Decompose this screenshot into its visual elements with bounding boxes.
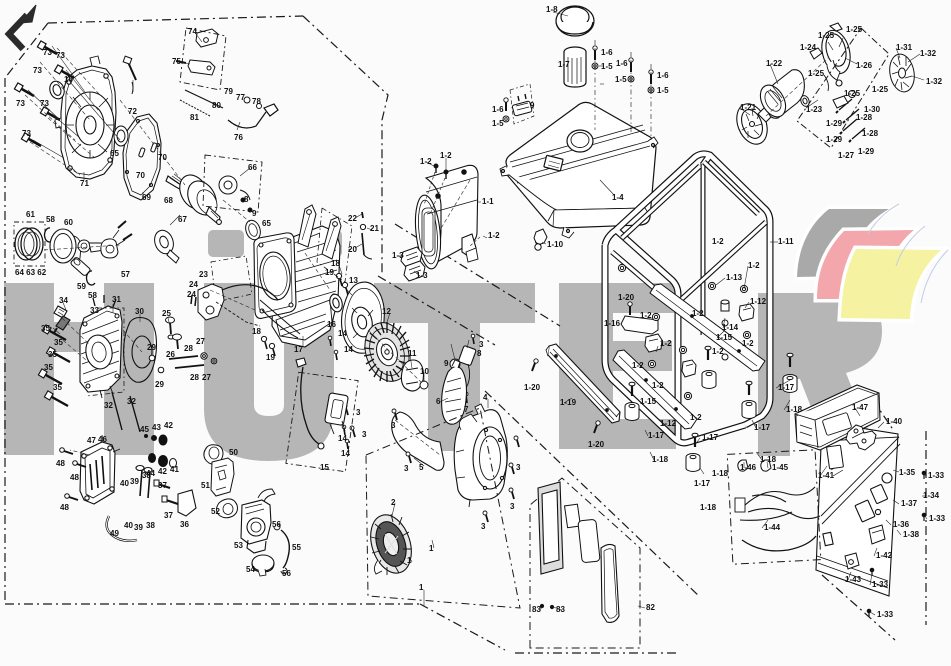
svg-text:1-40: 1-40 (886, 417, 903, 426)
svg-text:42: 42 (164, 421, 173, 430)
svg-text:29: 29 (147, 343, 156, 352)
svg-text:80: 80 (212, 101, 221, 110)
svg-text:20: 20 (348, 245, 357, 254)
svg-text:1: 1 (429, 544, 434, 553)
svg-text:16: 16 (64, 75, 73, 84)
svg-text:1-25: 1-25 (872, 85, 889, 94)
svg-text:41: 41 (170, 465, 179, 474)
svg-text:74: 74 (188, 27, 197, 36)
svg-text:17: 17 (294, 345, 303, 354)
svg-text:70: 70 (158, 153, 167, 162)
svg-text:1-25: 1-25 (846, 25, 863, 34)
svg-text:69: 69 (142, 193, 151, 202)
svg-text:1-18: 1-18 (652, 455, 669, 464)
svg-text:1-17: 1-17 (754, 423, 771, 432)
svg-text:1-33: 1-33 (872, 580, 889, 589)
svg-text:5: 5 (419, 463, 424, 472)
svg-text:51: 51 (201, 481, 210, 490)
svg-text:1: 1 (419, 583, 424, 592)
svg-text:16: 16 (327, 320, 336, 329)
svg-text:1-6: 1-6 (616, 59, 628, 68)
svg-text:39: 39 (134, 523, 143, 532)
svg-text:77: 77 (236, 93, 245, 102)
svg-text:1-34: 1-34 (923, 491, 940, 500)
svg-text:1-44: 1-44 (764, 523, 781, 532)
svg-text:24: 24 (189, 280, 198, 289)
svg-text:1-28: 1-28 (856, 113, 873, 122)
svg-text:33: 33 (90, 306, 99, 315)
svg-text:50: 50 (229, 448, 238, 457)
svg-text:19: 19 (266, 353, 275, 362)
svg-text:3: 3 (510, 502, 515, 511)
svg-text:1-14: 1-14 (722, 323, 739, 332)
svg-text:64 63 62: 64 63 62 (15, 268, 47, 277)
svg-text:35: 35 (44, 363, 53, 372)
svg-text:31: 31 (112, 295, 121, 304)
svg-text:40: 40 (124, 521, 133, 530)
svg-text:9: 9 (444, 359, 449, 368)
svg-text:58: 58 (46, 215, 55, 224)
svg-text:3: 3 (516, 463, 521, 472)
svg-text:53: 53 (234, 541, 243, 550)
svg-text:57: 57 (121, 270, 130, 279)
svg-text:4: 4 (483, 393, 488, 402)
svg-text:23: 23 (199, 270, 208, 279)
svg-text:1-31: 1-31 (896, 43, 913, 52)
svg-text:1-2: 1-2 (632, 361, 644, 370)
svg-text:1-45: 1-45 (772, 463, 789, 472)
svg-text:1-15: 1-15 (640, 397, 657, 406)
svg-text:28: 28 (190, 373, 199, 382)
svg-text:71: 71 (80, 179, 89, 188)
svg-text:1-18: 1-18 (712, 469, 729, 478)
svg-text:1-36: 1-36 (893, 520, 910, 529)
svg-text:1-28: 1-28 (862, 129, 879, 138)
svg-text:83: 83 (532, 605, 541, 614)
svg-text:1-30: 1-30 (864, 105, 881, 114)
svg-text:43: 43 (152, 423, 161, 432)
svg-text:82: 82 (646, 603, 655, 612)
svg-text:1-19: 1-19 (560, 398, 577, 407)
svg-text:1-2: 1-2 (660, 339, 672, 348)
svg-text:1-17: 1-17 (694, 479, 711, 488)
svg-text:1-46: 1-46 (740, 463, 757, 472)
svg-text:3: 3 (391, 421, 396, 430)
svg-text:70: 70 (136, 171, 145, 180)
svg-text:1-23: 1-23 (806, 105, 823, 114)
svg-text:25: 25 (162, 309, 171, 318)
svg-text:2: 2 (391, 498, 396, 507)
svg-text:14: 14 (341, 449, 350, 458)
svg-text:35: 35 (53, 383, 62, 392)
svg-text:1-4: 1-4 (612, 193, 624, 202)
svg-text:73: 73 (22, 129, 31, 138)
svg-text:48: 48 (56, 459, 65, 468)
svg-text:48: 48 (70, 473, 79, 482)
svg-text:35: 35 (48, 350, 57, 359)
svg-text:73: 73 (16, 99, 25, 108)
svg-text:39: 39 (130, 477, 139, 486)
svg-text:54: 54 (246, 565, 255, 574)
svg-text:73: 73 (56, 51, 65, 60)
svg-text:18: 18 (331, 259, 340, 268)
svg-text:67: 67 (178, 215, 187, 224)
svg-text:73: 73 (40, 99, 49, 108)
svg-text:37: 37 (158, 481, 167, 490)
svg-text:1-2: 1-2 (748, 261, 760, 270)
svg-text:1-2: 1-2 (652, 381, 664, 390)
svg-text:38: 38 (146, 521, 155, 530)
svg-text:1-38: 1-38 (903, 530, 920, 539)
svg-text:1-20: 1-20 (588, 440, 605, 449)
svg-text:19: 19 (325, 268, 334, 277)
svg-text:38: 38 (142, 471, 151, 480)
svg-text:1-2: 1-2 (742, 339, 754, 348)
svg-text:1-17: 1-17 (778, 383, 795, 392)
svg-text:24: 24 (187, 290, 196, 299)
svg-text:1-32: 1-32 (926, 77, 943, 86)
svg-text:1-5: 1-5 (601, 62, 613, 71)
svg-text:1-16: 1-16 (604, 319, 621, 328)
svg-text:27: 27 (202, 373, 211, 382)
svg-text:1-2: 1-2 (692, 309, 704, 318)
svg-text:3: 3 (362, 430, 367, 439)
svg-text:9: 9 (252, 209, 257, 218)
svg-text:9: 9 (530, 101, 535, 110)
svg-text:1-18: 1-18 (786, 405, 803, 414)
svg-text:1-15: 1-15 (716, 333, 733, 342)
svg-text:3: 3 (356, 408, 361, 417)
svg-text:1-29: 1-29 (858, 147, 875, 156)
svg-text:8: 8 (244, 195, 249, 204)
svg-text:1-2: 1-2 (420, 157, 432, 166)
svg-text:18: 18 (252, 327, 261, 336)
svg-text:1-26: 1-26 (856, 61, 873, 70)
svg-text:1-6: 1-6 (657, 71, 669, 80)
svg-text:1-20: 1-20 (524, 383, 541, 392)
svg-text:32: 32 (104, 401, 113, 410)
svg-text:1-3: 1-3 (416, 271, 428, 280)
svg-text:36: 36 (180, 520, 189, 529)
svg-text:10: 10 (420, 367, 429, 376)
svg-text:52: 52 (211, 507, 220, 516)
svg-text:1-29: 1-29 (826, 119, 843, 128)
svg-text:34: 34 (59, 296, 68, 305)
svg-text:42: 42 (158, 467, 167, 476)
svg-text:1-5: 1-5 (657, 86, 669, 95)
svg-text:30: 30 (135, 307, 144, 316)
svg-text:75: 75 (172, 57, 181, 66)
svg-text:1-32: 1-32 (920, 49, 937, 58)
svg-text:1-25: 1-25 (844, 89, 861, 98)
svg-text:1-2: 1-2 (488, 231, 500, 240)
svg-text:1-25: 1-25 (818, 31, 835, 40)
svg-text:81: 81 (190, 113, 199, 122)
svg-text:1: 1 (407, 556, 412, 565)
svg-text:73: 73 (33, 66, 42, 75)
svg-text:73: 73 (43, 48, 52, 57)
svg-text:45: 45 (140, 425, 149, 434)
svg-text:1-12: 1-12 (660, 419, 677, 428)
svg-text:13: 13 (349, 276, 358, 285)
svg-text:1-12: 1-12 (750, 297, 767, 306)
svg-text:3: 3 (404, 464, 409, 473)
svg-text:1-29: 1-29 (826, 135, 843, 144)
svg-text:14: 14 (338, 434, 347, 443)
svg-text:14: 14 (338, 329, 347, 338)
svg-text:1-47: 1-47 (852, 403, 869, 412)
svg-text:72: 72 (128, 107, 137, 116)
svg-text:1-24: 1-24 (800, 43, 817, 52)
svg-text:83: 83 (556, 605, 565, 614)
svg-text:6: 6 (436, 397, 441, 406)
svg-text:1-42: 1-42 (876, 551, 893, 560)
svg-text:1-25: 1-25 (808, 69, 825, 78)
svg-text:35: 35 (54, 338, 63, 347)
svg-text:1-27: 1-27 (838, 151, 855, 160)
svg-text:1-33: 1-33 (928, 471, 945, 480)
svg-text:49: 49 (110, 529, 119, 538)
svg-text:56: 56 (282, 569, 291, 578)
svg-text:21: 21 (370, 224, 379, 233)
svg-text:1-41: 1-41 (818, 471, 835, 480)
svg-text:1-21: 1-21 (740, 103, 757, 112)
svg-text:1-37: 1-37 (901, 499, 918, 508)
svg-text:1-33: 1-33 (929, 514, 946, 523)
svg-text:11: 11 (408, 349, 417, 358)
svg-text:79: 79 (224, 87, 233, 96)
svg-text:1-17: 1-17 (702, 433, 719, 442)
svg-text:1-3: 1-3 (392, 251, 404, 260)
svg-text:7: 7 (464, 405, 469, 414)
svg-text:40: 40 (120, 479, 129, 488)
svg-text:1-33: 1-33 (877, 610, 894, 619)
svg-text:35: 35 (41, 324, 50, 333)
svg-text:47: 47 (87, 436, 96, 445)
svg-text:1-7: 1-7 (558, 60, 570, 69)
svg-text:59: 59 (77, 282, 86, 291)
svg-text:65: 65 (262, 219, 271, 228)
svg-text:1-10: 1-10 (547, 240, 564, 249)
svg-text:1-22: 1-22 (766, 59, 783, 68)
svg-text:76: 76 (234, 133, 243, 142)
svg-text:55: 55 (292, 543, 301, 552)
svg-text:68: 68 (164, 196, 173, 205)
svg-text:3: 3 (479, 340, 484, 349)
svg-text:26: 26 (166, 350, 175, 359)
svg-text:12: 12 (382, 307, 391, 316)
svg-text:1-5: 1-5 (615, 75, 627, 84)
svg-text:1-2: 1-2 (690, 413, 702, 422)
svg-text:66: 66 (248, 163, 257, 172)
svg-text:1-2: 1-2 (712, 347, 724, 356)
svg-text:1-2: 1-2 (440, 151, 452, 160)
svg-text:1-6: 1-6 (492, 105, 504, 114)
svg-text:37: 37 (164, 511, 173, 520)
svg-text:48: 48 (60, 503, 69, 512)
svg-text:1-2: 1-2 (712, 237, 724, 246)
svg-text:1-11: 1-11 (778, 237, 794, 246)
svg-text:61: 61 (26, 210, 35, 219)
svg-text:1-20: 1-20 (618, 293, 635, 302)
svg-text:29: 29 (155, 380, 164, 389)
svg-text:1-2: 1-2 (640, 311, 652, 320)
svg-text:1-8: 1-8 (546, 5, 558, 14)
svg-text:1-35: 1-35 (899, 468, 916, 477)
svg-text:56: 56 (272, 520, 281, 529)
svg-text:1-5: 1-5 (492, 119, 504, 128)
svg-text:58: 58 (88, 291, 97, 300)
svg-text:15: 15 (320, 463, 329, 472)
svg-text:46: 46 (98, 435, 107, 444)
svg-text:1-6: 1-6 (601, 48, 613, 57)
svg-text:1-1: 1-1 (482, 197, 494, 206)
svg-text:1-18: 1-18 (700, 503, 717, 512)
svg-text:78: 78 (252, 97, 261, 106)
svg-text:3: 3 (481, 522, 486, 531)
svg-text:27: 27 (196, 337, 205, 346)
svg-text:1-43: 1-43 (845, 575, 862, 584)
svg-text:22: 22 (348, 214, 357, 223)
svg-text:65: 65 (110, 149, 119, 158)
svg-text:8: 8 (477, 349, 482, 358)
svg-text:1-13: 1-13 (726, 273, 743, 282)
svg-text:60: 60 (64, 218, 73, 227)
svg-text:1-17: 1-17 (648, 431, 665, 440)
svg-text:14: 14 (344, 345, 353, 354)
svg-text:32: 32 (127, 397, 136, 406)
svg-text:28: 28 (184, 344, 193, 353)
